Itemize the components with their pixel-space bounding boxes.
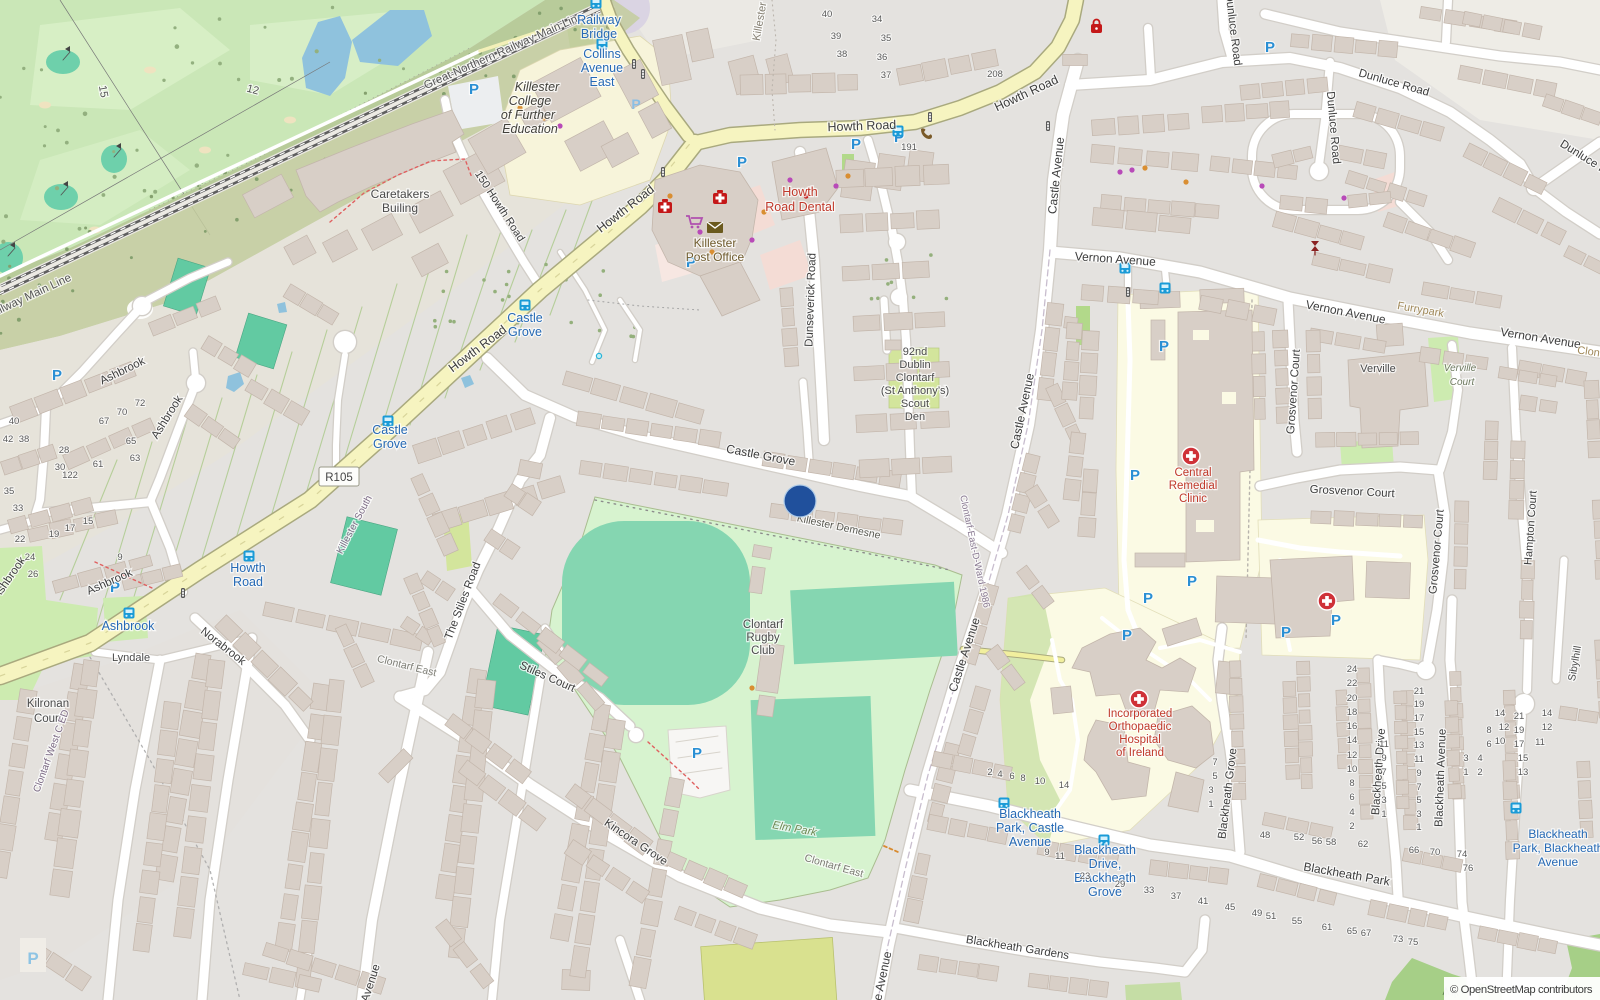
svg-text:9: 9	[1381, 753, 1386, 764]
svg-text:24: 24	[25, 552, 36, 563]
svg-text:Clontarf: Clontarf	[896, 372, 935, 384]
svg-text:62: 62	[1358, 839, 1369, 850]
svg-text:P: P	[737, 154, 747, 171]
svg-text:Killester: Killester	[694, 236, 737, 250]
svg-text:19: 19	[49, 529, 60, 540]
svg-text:208: 208	[987, 69, 1003, 80]
svg-text:Killester: Killester	[515, 80, 560, 94]
svg-text:Avenue: Avenue	[1538, 855, 1579, 869]
svg-text:East: East	[589, 75, 615, 89]
svg-text:65: 65	[1347, 926, 1358, 937]
svg-text:75: 75	[1408, 937, 1419, 948]
svg-text:15: 15	[1414, 727, 1425, 738]
svg-text:7: 7	[1416, 782, 1421, 793]
svg-text:9: 9	[1416, 768, 1421, 779]
svg-text:P: P	[1265, 39, 1275, 56]
svg-text:3: 3	[1463, 753, 1468, 764]
svg-text:Central: Central	[1174, 467, 1211, 479]
svg-text:65: 65	[126, 436, 137, 447]
svg-text:Post Office: Post Office	[686, 250, 745, 264]
svg-text:Ashbrook: Ashbrook	[102, 619, 156, 633]
svg-text:Verville: Verville	[1360, 363, 1395, 375]
svg-text:Education: Education	[502, 122, 558, 136]
svg-text:Park, Castle: Park, Castle	[996, 821, 1064, 835]
svg-text:15: 15	[1518, 753, 1529, 764]
svg-text:3: 3	[1381, 795, 1386, 806]
svg-text:1: 1	[1416, 822, 1421, 833]
svg-text:P: P	[1281, 624, 1291, 641]
svg-text:10: 10	[1035, 776, 1046, 787]
svg-text:(St Anthony’s): (St Anthony’s)	[881, 385, 949, 397]
svg-text:36: 36	[877, 52, 888, 63]
svg-text:56: 56	[1312, 836, 1323, 847]
svg-text:40: 40	[9, 416, 20, 427]
svg-text:26: 26	[28, 569, 39, 580]
svg-text:13: 13	[1414, 740, 1425, 751]
svg-text:Blackheath: Blackheath	[1528, 827, 1587, 841]
svg-text:51: 51	[1266, 911, 1277, 922]
svg-text:1: 1	[1381, 809, 1386, 820]
svg-text:70: 70	[1430, 847, 1441, 858]
svg-text:Orthopaedic: Orthopaedic	[1109, 721, 1172, 733]
svg-text:14: 14	[1495, 708, 1506, 719]
svg-text:Clontarf: Clontarf	[743, 619, 784, 631]
svg-text:92nd: 92nd	[903, 346, 927, 358]
svg-text:49: 49	[1252, 908, 1263, 919]
svg-text:P: P	[631, 96, 640, 112]
svg-text:12: 12	[1542, 722, 1553, 733]
svg-text:4: 4	[1477, 753, 1482, 764]
svg-text:Drive,: Drive,	[1089, 857, 1122, 871]
svg-text:73: 73	[1393, 934, 1404, 945]
svg-text:76: 76	[1463, 863, 1474, 874]
svg-text:Railway: Railway	[577, 13, 622, 27]
svg-text:Scout: Scout	[901, 398, 929, 410]
svg-text:17: 17	[1514, 739, 1525, 750]
svg-text:P: P	[1159, 338, 1169, 355]
svg-text:Blackheath: Blackheath	[999, 807, 1061, 821]
svg-text:21: 21	[1414, 686, 1425, 697]
svg-text:Court: Court	[1450, 377, 1476, 388]
svg-text:Castle: Castle	[372, 423, 407, 437]
svg-text:of Ireland: of Ireland	[1116, 747, 1164, 759]
svg-text:Caretakers: Caretakers	[371, 187, 430, 201]
svg-text:4: 4	[997, 769, 1002, 780]
svg-text:14: 14	[1059, 780, 1070, 791]
svg-text:12: 12	[1499, 722, 1510, 733]
svg-text:Lyndale: Lyndale	[112, 652, 150, 664]
svg-text:24: 24	[1347, 664, 1358, 675]
svg-text:52: 52	[1294, 832, 1305, 843]
svg-text:70: 70	[117, 407, 128, 418]
svg-text:17: 17	[65, 523, 76, 534]
svg-text:P: P	[692, 745, 702, 762]
svg-text:College: College	[509, 94, 551, 108]
svg-text:1: 1	[1463, 767, 1468, 778]
svg-text:4: 4	[1349, 807, 1354, 818]
svg-text:Road Dental: Road Dental	[765, 200, 835, 214]
svg-text:Howth Road: Howth Road	[827, 118, 896, 134]
svg-text:67: 67	[1361, 928, 1372, 939]
svg-text:22: 22	[1347, 678, 1358, 689]
svg-text:20: 20	[1347, 693, 1358, 704]
svg-text:Collins: Collins	[583, 47, 621, 61]
svg-text:© OpenStreetMap contributors: © OpenStreetMap contributors	[1450, 984, 1593, 996]
svg-text:Road: Road	[233, 575, 263, 589]
svg-text:2: 2	[1349, 821, 1354, 832]
svg-text:P: P	[1187, 573, 1197, 590]
svg-text:19: 19	[1514, 725, 1525, 736]
svg-text:45: 45	[1225, 902, 1236, 913]
svg-text:13: 13	[1518, 767, 1529, 778]
svg-text:Clinic: Clinic	[1179, 493, 1207, 505]
svg-text:21: 21	[1514, 711, 1525, 722]
svg-text:P: P	[27, 949, 38, 968]
svg-text:74: 74	[1457, 849, 1468, 860]
svg-text:72: 72	[135, 398, 146, 409]
svg-text:Hospital: Hospital	[1119, 734, 1161, 746]
svg-text:19: 19	[1414, 699, 1425, 710]
svg-text:P: P	[1331, 612, 1341, 629]
svg-text:Howth: Howth	[230, 561, 265, 575]
svg-text:23: 23	[1080, 871, 1091, 882]
svg-text:14: 14	[1542, 708, 1553, 719]
svg-text:P: P	[1143, 590, 1153, 607]
svg-text:6: 6	[1349, 792, 1354, 803]
svg-text:11: 11	[1414, 754, 1424, 765]
svg-text:29: 29	[1115, 879, 1126, 890]
svg-text:Rugby: Rugby	[746, 632, 779, 644]
svg-text:Blackheath: Blackheath	[1074, 843, 1136, 857]
svg-text:7: 7	[1212, 757, 1217, 768]
svg-text:6: 6	[1009, 771, 1014, 782]
svg-text:Grove: Grove	[508, 325, 542, 339]
svg-text:35: 35	[4, 486, 15, 497]
svg-text:39: 39	[831, 31, 842, 42]
svg-text:38: 38	[837, 49, 848, 60]
svg-text:10: 10	[1347, 764, 1358, 775]
svg-text:67: 67	[99, 416, 110, 427]
svg-text:22: 22	[15, 534, 26, 545]
svg-text:11: 11	[1535, 737, 1545, 748]
svg-text:7: 7	[1381, 767, 1386, 778]
svg-text:9: 9	[117, 552, 122, 563]
svg-text:14: 14	[1347, 735, 1358, 746]
svg-text:55: 55	[1292, 916, 1303, 927]
svg-text:61: 61	[93, 459, 104, 470]
svg-text:R105: R105	[325, 472, 353, 484]
svg-text:P: P	[1122, 627, 1132, 644]
svg-text:2: 2	[987, 767, 992, 778]
svg-text:33: 33	[13, 503, 24, 514]
svg-text:P: P	[851, 136, 861, 153]
svg-text:8: 8	[1486, 725, 1491, 736]
svg-text:2: 2	[1477, 767, 1482, 778]
svg-text:63: 63	[130, 453, 141, 464]
svg-text:Builing: Builing	[382, 201, 418, 215]
svg-text:37: 37	[881, 70, 892, 81]
svg-text:40: 40	[822, 9, 833, 20]
svg-text:34: 34	[872, 14, 883, 25]
svg-text:Castle: Castle	[507, 311, 542, 325]
svg-text:37: 37	[1171, 891, 1182, 902]
svg-text:1: 1	[1208, 799, 1213, 810]
svg-text:5: 5	[1381, 781, 1386, 792]
svg-text:122: 122	[62, 470, 78, 481]
svg-text:28: 28	[59, 445, 70, 456]
svg-text:8: 8	[1020, 773, 1025, 784]
svg-text:3: 3	[1208, 785, 1213, 796]
svg-text:Club: Club	[751, 645, 775, 657]
svg-text:48: 48	[1260, 830, 1271, 841]
svg-text:P: P	[52, 367, 62, 384]
svg-text:P: P	[1130, 467, 1140, 484]
svg-text:18: 18	[1347, 707, 1358, 718]
svg-text:Dublin: Dublin	[899, 359, 930, 371]
svg-text:8: 8	[1349, 778, 1354, 789]
svg-text:Kilronan: Kilronan	[27, 698, 69, 710]
svg-text:3: 3	[1416, 809, 1421, 820]
svg-text:61: 61	[1322, 922, 1333, 933]
svg-text:17: 17	[1414, 713, 1425, 724]
svg-text:33: 33	[1144, 885, 1155, 896]
svg-text:58: 58	[1326, 837, 1337, 848]
svg-text:38: 38	[19, 434, 30, 445]
svg-text:15: 15	[96, 84, 110, 98]
svg-text:Den: Den	[905, 411, 925, 423]
svg-text:5: 5	[1416, 795, 1421, 806]
svg-text:Remedial: Remedial	[1169, 480, 1218, 492]
svg-text:Verville: Verville	[1444, 363, 1477, 374]
svg-text:16: 16	[1347, 721, 1358, 732]
svg-text:66: 66	[1409, 845, 1420, 856]
svg-text:of Further: of Further	[501, 108, 556, 122]
svg-text:Howth: Howth	[782, 185, 817, 199]
svg-text:6: 6	[1486, 739, 1491, 750]
svg-text:Avenue: Avenue	[581, 61, 623, 75]
svg-text:191: 191	[901, 142, 917, 153]
svg-text:5: 5	[1212, 771, 1217, 782]
svg-text:Incorporated: Incorporated	[1108, 708, 1173, 720]
svg-text:35: 35	[881, 33, 892, 44]
svg-text:11: 11	[1379, 739, 1389, 750]
svg-text:P: P	[469, 81, 479, 98]
svg-text:9: 9	[1044, 847, 1049, 858]
svg-text:15: 15	[83, 516, 94, 527]
svg-text:11: 11	[1055, 851, 1065, 862]
svg-text:12: 12	[1347, 750, 1358, 761]
svg-text:Bridge: Bridge	[581, 27, 617, 41]
svg-text:41: 41	[1198, 896, 1209, 907]
svg-text:10: 10	[1495, 736, 1506, 747]
svg-text:Park, Blackheath: Park, Blackheath	[1513, 841, 1600, 855]
svg-text:Grove: Grove	[373, 437, 407, 451]
svg-text:42: 42	[3, 434, 14, 445]
